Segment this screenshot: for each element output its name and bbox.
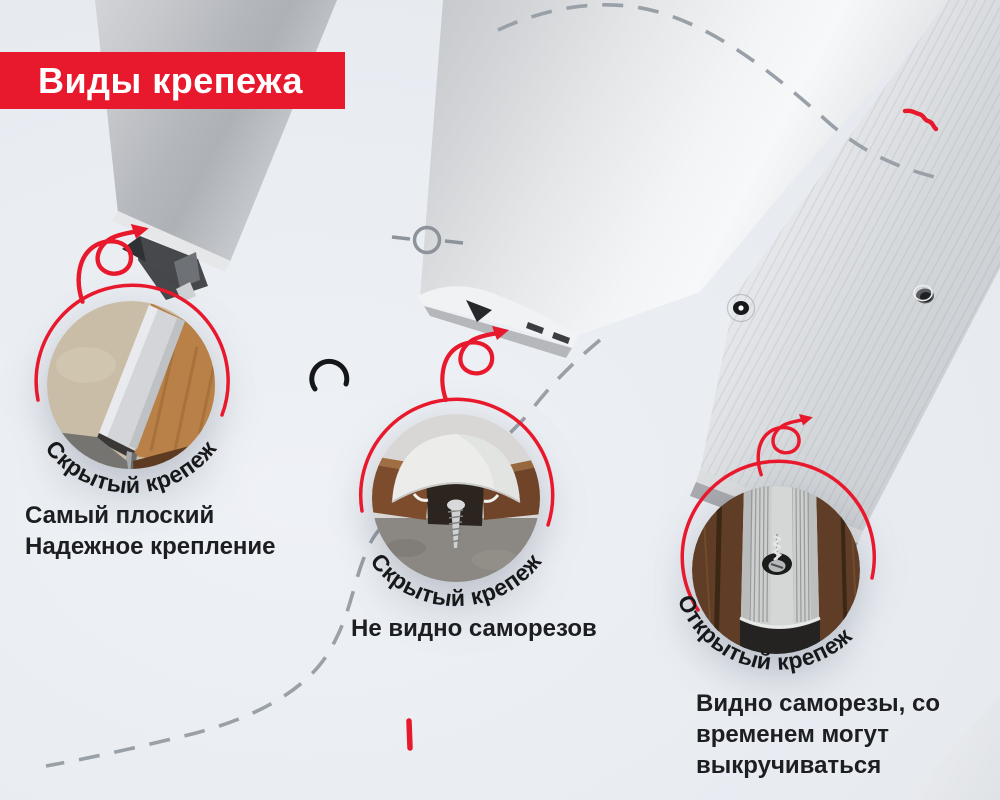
title-banner: Виды крепежа [0, 52, 345, 109]
caption-line: Не видно саморезов [351, 613, 597, 644]
red-tick-icon [409, 721, 410, 748]
fastener-photo-open-profile: Открытый крепеж [646, 440, 906, 700]
fastener-photo-dome-profile: Скрытый крепеж [326, 368, 586, 628]
caption-line: Самый плоский [25, 500, 276, 531]
caption-dome-profile: Не видно саморезов [351, 613, 597, 644]
caption-line: выкручиваться [696, 750, 940, 781]
page-title: Виды крепежа [38, 60, 303, 102]
caption-t-profile: Самый плоский Надежное крепление [25, 500, 276, 562]
caption-line: временем могут [696, 719, 940, 750]
caption-open-profile: Видно саморезы, со временем могут выкруч… [696, 688, 940, 781]
caption-line: Видно саморезы, со [696, 688, 940, 719]
aluminum-strip-left [95, 0, 337, 262]
fastener-photo-t-profile: Скрытый крепеж [1, 255, 261, 515]
caption-line: Надежное крепление [25, 531, 276, 562]
infographic-canvas: Скрытый крепеж С [0, 0, 1000, 800]
